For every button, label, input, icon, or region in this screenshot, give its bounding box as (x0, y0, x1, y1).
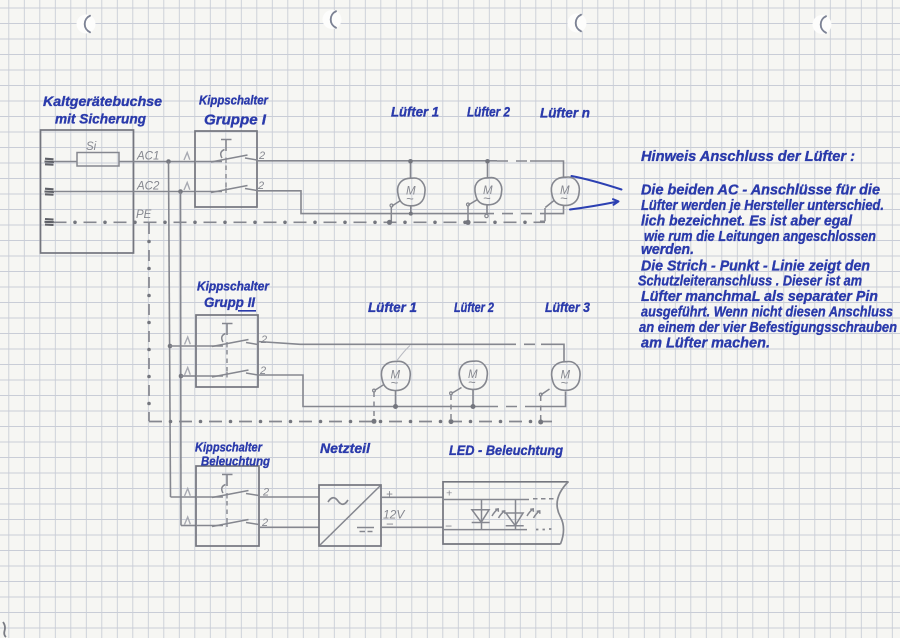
svg-text:Lüfter 2: Lüfter 2 (467, 105, 510, 120)
svg-text:Lüfter manchmaL als separater: Lüfter manchmaL als separater Pin (641, 289, 878, 305)
svg-text:Kippschalter: Kippschalter (199, 93, 269, 108)
svg-text:Lüfter n: Lüfter n (540, 106, 590, 121)
svg-text:~: ~ (468, 374, 476, 389)
svg-text:12V: 12V (383, 508, 405, 522)
svg-text:AC1: AC1 (136, 151, 159, 163)
svg-text:+: + (386, 489, 393, 501)
svg-text:an einem der vier Befestigungs: an einem der vier Befestigungsschrauben (639, 320, 897, 336)
svg-text:Kippschalter: Kippschalter (197, 279, 270, 294)
svg-text:PE: PE (136, 209, 152, 221)
svg-text:Schutzleiteranschluss . Dieser: Schutzleiteranschluss . Dieser ist am (638, 274, 862, 290)
svg-text:Si: Si (86, 141, 97, 153)
svg-text:lich bezeichnet. Es ist aber e: lich bezeichnet. Es ist aber egal (641, 214, 853, 230)
svg-text:Kippschalter: Kippschalter (195, 440, 263, 455)
svg-text:Netzteil: Netzteil (320, 440, 371, 456)
svg-text:werden.: werden. (641, 242, 694, 258)
svg-text:LED - Beleuchtung: LED - Beleuchtung (449, 442, 563, 458)
svg-text:~: ~ (391, 375, 399, 390)
svg-text:Lüfter 3: Lüfter 3 (545, 300, 590, 315)
svg-text:Kaltgerätebuchse: Kaltgerätebuchse (43, 93, 162, 109)
svg-text:Lüfter 1: Lüfter 1 (391, 105, 439, 120)
svg-text:Lüfter werden je Hersteller un: Lüfter werden je Hersteller unterschied. (641, 198, 884, 214)
svg-text:−: − (445, 519, 452, 533)
svg-text:2: 2 (260, 334, 267, 346)
svg-text:Die beiden AC - Anschlüsse für: Die beiden AC - Anschlüsse für die (641, 183, 880, 199)
svg-text:Lüfter 1: Lüfter 1 (368, 300, 417, 315)
svg-text:am Lüfter machen.: am Lüfter machen. (641, 336, 770, 352)
svg-text:Hinweis Anschluss der Lüfter :: Hinweis Anschluss der Lüfter : (641, 149, 855, 165)
svg-text:Die Strich - Punkt - Linie zei: Die Strich - Punkt - Linie zeigt den (641, 259, 870, 275)
svg-text:Lüfter 2: Lüfter 2 (454, 300, 494, 315)
svg-text:~: ~ (561, 375, 569, 390)
svg-text:~: ~ (560, 190, 568, 205)
svg-text:ausgeführt. Wenn nicht diesen: ausgeführt. Wenn nicht diesen Anschluss (641, 305, 893, 321)
svg-text:Beleuchtung: Beleuchtung (201, 454, 270, 469)
svg-text:Grupp II: Grupp II (204, 294, 256, 310)
svg-text:AC2: AC2 (136, 181, 160, 193)
svg-text:+: + (446, 488, 452, 500)
svg-text:mit Sicherung: mit Sicherung (55, 111, 146, 127)
svg-text:~: ~ (406, 191, 414, 206)
svg-text:~: ~ (483, 190, 491, 205)
svg-text:Gruppe I: Gruppe I (204, 113, 267, 129)
